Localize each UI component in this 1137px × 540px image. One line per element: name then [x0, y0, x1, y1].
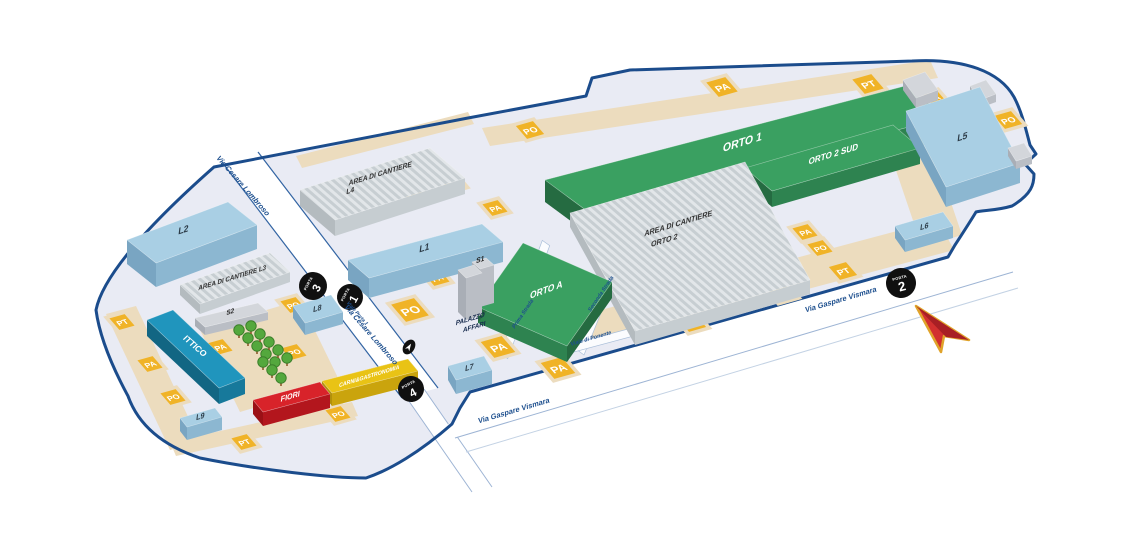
- tree-crown: [273, 345, 283, 355]
- tree-crown: [264, 337, 274, 347]
- tree-crown: [255, 329, 265, 339]
- building-face: [458, 270, 466, 320]
- building-s1-tower-front[interactable]: PALAZZOAFFARI: [455, 265, 486, 334]
- tree-crown: [243, 333, 253, 343]
- location-arrow-icon: [916, 306, 969, 352]
- tree-crown: [282, 353, 292, 363]
- tree-crown: [258, 357, 268, 367]
- tree-crown: [234, 325, 244, 335]
- tree-crown: [252, 341, 262, 351]
- facility-map: PTPAPOPAPOPOPTPOPTPOPAPAPOPAPAPOPAPTPAPO…: [0, 0, 1137, 540]
- tree-crown: [276, 373, 286, 383]
- tree-crown: [267, 365, 277, 375]
- tree-crown: [246, 321, 256, 331]
- building-face: [480, 265, 494, 307]
- facility-map-stage: PTPAPOPAPOPOPTPOPTPOPAPAPOPAPAPOPAPTPAPO…: [0, 0, 1137, 540]
